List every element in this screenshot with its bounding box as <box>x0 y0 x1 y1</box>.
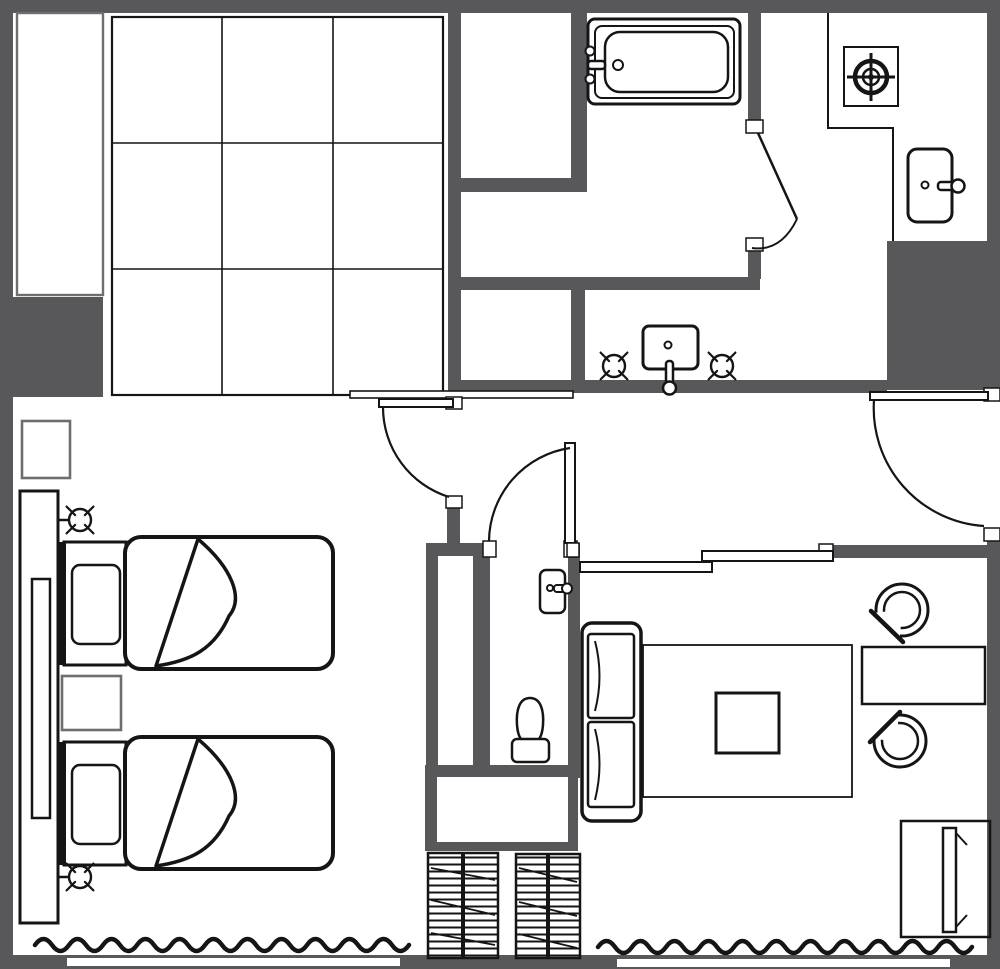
tub-chair <box>871 584 928 642</box>
wall-top <box>0 0 1000 13</box>
door-swing-arc <box>489 448 570 541</box>
wall-grid-bath <box>448 12 461 398</box>
window-band-left <box>67 958 400 966</box>
tub-handle <box>586 75 595 84</box>
wall-block-top-left <box>0 297 103 397</box>
wall-closet-left <box>426 543 438 765</box>
tub-faucet <box>588 61 605 69</box>
slide-jamb <box>567 543 579 557</box>
mattress <box>125 737 333 869</box>
door-leaf <box>758 133 797 219</box>
toilet <box>512 698 549 762</box>
sliding-panel <box>580 562 712 572</box>
twin-bed <box>58 537 333 669</box>
tub-handle <box>586 47 595 56</box>
tv-cabinet <box>901 821 990 937</box>
wall-stub-bedroom-door <box>447 507 460 545</box>
sliding-panel <box>702 551 833 561</box>
bathtub <box>586 19 741 104</box>
mattress <box>125 537 333 669</box>
chair-seat-edge <box>871 611 903 642</box>
wall-lamp-symbol <box>67 507 94 534</box>
desk <box>862 647 985 704</box>
nightstand <box>22 421 70 478</box>
wall-bath-right-lower <box>748 251 761 279</box>
door-swing-arc <box>383 407 449 497</box>
coffee-table <box>716 693 779 753</box>
basin-faucet <box>666 361 673 383</box>
door-leaf <box>379 399 453 407</box>
wall-wc-left <box>473 543 490 765</box>
pillow <box>72 565 120 644</box>
entry-door <box>870 388 1000 541</box>
wall-roomA-bottom <box>461 178 587 192</box>
twin-bed <box>58 737 333 869</box>
wall-roomA-bath <box>571 12 587 180</box>
sofa <box>582 623 641 821</box>
sliding-partition <box>567 543 833 572</box>
tv-screen <box>943 828 956 932</box>
lamp-symbol <box>601 353 628 380</box>
lamp-symbol <box>709 353 736 380</box>
window-band-right <box>617 959 950 967</box>
basin-drain <box>665 342 672 349</box>
louvered-unit <box>516 854 580 958</box>
sofa-cushion <box>588 634 634 718</box>
wall-kitchen-block <box>887 241 988 390</box>
toilet-door <box>483 443 577 557</box>
headboard-panel <box>20 491 58 923</box>
wall-right-upper <box>987 0 1000 389</box>
closet-grid-area <box>112 17 443 395</box>
door-jamb <box>483 541 496 557</box>
storage-room <box>17 13 103 295</box>
bathroom-door <box>746 120 797 251</box>
sofa-cushion <box>588 722 634 807</box>
door-jamb <box>746 120 763 133</box>
curtain-wave-left <box>35 939 409 951</box>
kitchen-sink <box>908 149 965 222</box>
bedroom-door <box>379 397 462 508</box>
door-swing-arc <box>874 400 984 526</box>
door-jamb <box>984 528 1000 541</box>
nook-inner-panel <box>437 777 568 842</box>
nightstand <box>62 676 121 730</box>
basin-knob <box>663 382 676 395</box>
wall-bath-vanity <box>461 277 760 290</box>
wall-lamp-symbol <box>67 864 94 891</box>
tub-chair <box>870 712 926 767</box>
louvered-unit <box>428 853 498 958</box>
wall-bath-right-upper <box>748 12 761 122</box>
floor-plan-canvas <box>0 0 1000 969</box>
stove-burner <box>844 47 898 106</box>
floor-plan <box>0 0 1000 969</box>
small-sink <box>540 570 572 613</box>
wall-corridor-bottom <box>833 545 988 558</box>
pillow <box>72 765 120 844</box>
wall-roomD-vanity <box>571 287 585 382</box>
wall-left <box>0 0 13 969</box>
tub-drain <box>613 60 623 70</box>
curtain-wave-right <box>598 941 972 953</box>
door-leaf <box>565 443 575 543</box>
door-leaf <box>870 392 988 400</box>
wall-wc-right <box>568 543 580 765</box>
rug <box>643 645 852 797</box>
chair-seat-edge <box>870 712 900 742</box>
